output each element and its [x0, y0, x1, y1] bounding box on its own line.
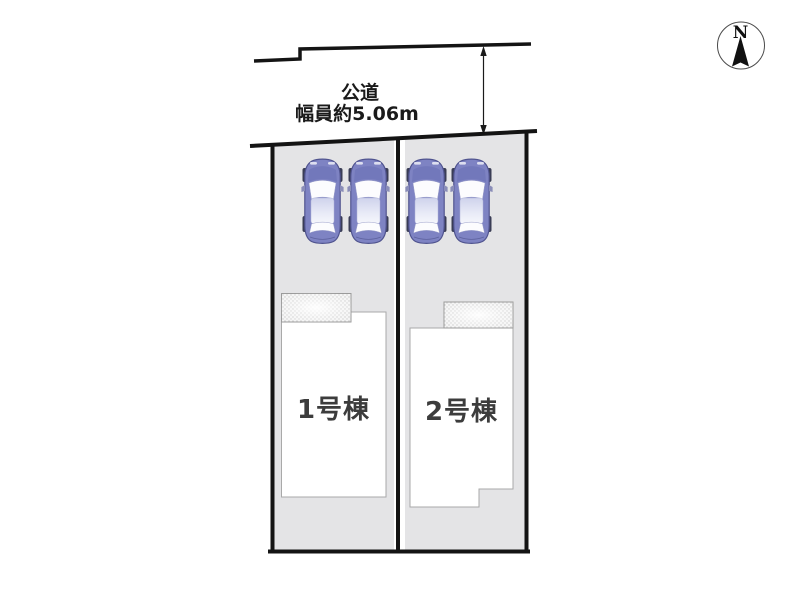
- building-1: 1号棟: [282, 294, 387, 498]
- car-icon: [347, 159, 389, 243]
- car-icon: [450, 159, 492, 243]
- car-icon: [301, 159, 343, 243]
- road-width-label: 幅員約5.06m: [295, 102, 419, 125]
- north-compass: N: [718, 22, 765, 69]
- building-1-label: 1号棟: [297, 395, 370, 425]
- road-name-label: 公道: [341, 81, 379, 104]
- road-width-dimension-arrow: [480, 46, 486, 135]
- building-1-porch: [282, 294, 352, 323]
- building-2: 2号棟: [410, 302, 513, 507]
- building-2-label: 2号棟: [425, 397, 498, 427]
- building-2-porch: [444, 302, 513, 328]
- plot-layout-diagram: 公道 幅員約5.06m N 1号棟 2号棟: [0, 0, 800, 600]
- road-edge-line: [254, 44, 531, 61]
- site-plan-canvas: 公道 幅員約5.06m N 1号棟 2号棟: [0, 0, 800, 600]
- car-icon: [405, 159, 447, 243]
